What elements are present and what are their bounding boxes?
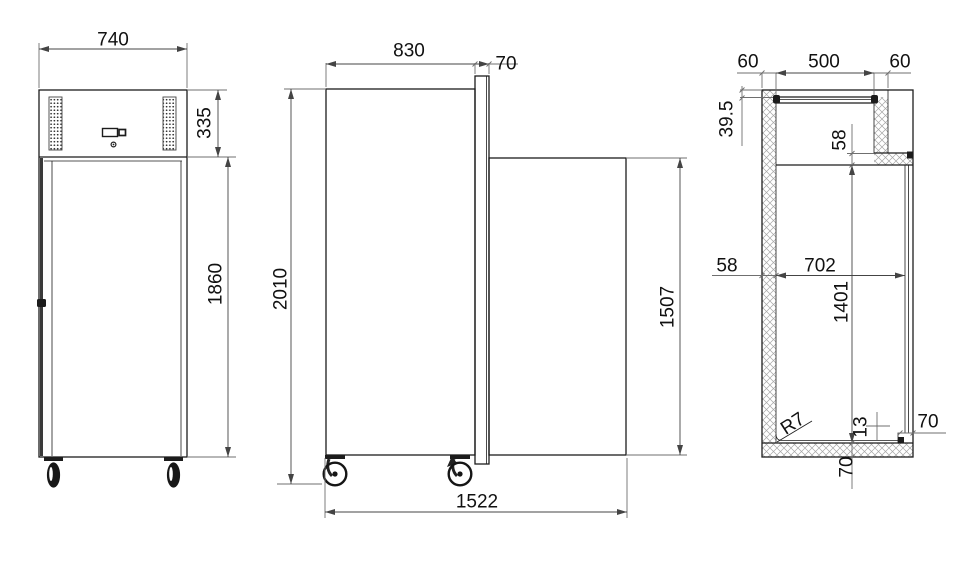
dim-top-duct-height: 58 (830, 129, 851, 150)
front-caster-left (44, 457, 63, 488)
dim-top-panel-inset: 39.5 (717, 101, 738, 138)
top-panel-end-cap-right (871, 95, 878, 104)
dim-left-wall-thickness: 60 (737, 52, 758, 73)
door-hinge (37, 299, 46, 307)
section-right-upper-wall (874, 97, 888, 153)
top-panel-end-cap-left (773, 95, 780, 104)
dim-front-overall-width: 740 (97, 30, 129, 51)
display-window (103, 129, 118, 137)
open-door-panel (489, 158, 626, 455)
side-cabinet-outline (326, 89, 475, 455)
dim-floor-panel-thickness: 13 (851, 416, 872, 437)
dim-rear-wall-thickness: 58 (716, 256, 737, 277)
technical-drawing-page: 740 335 1860 (0, 0, 962, 581)
side-caster-rear (447, 455, 471, 485)
dim-overall-height: 2010 (271, 268, 292, 310)
dim-inner-corner-radius: R7 (777, 409, 809, 440)
dim-bottom-insulation-thickness: 70 (837, 456, 858, 477)
control-panel (103, 129, 126, 147)
refrigerator-dimension-drawing: 740 335 1860 (0, 0, 962, 581)
side-view: 830 70 2010 1507 1522 (271, 41, 688, 519)
section-bottom-insulation (762, 443, 913, 457)
duct-front-seal (907, 152, 913, 159)
top-panel-bar (773, 95, 878, 104)
section-left-wall-insulation (762, 90, 776, 443)
dim-machine-compartment-height: 335 (195, 107, 216, 139)
vent-grille-right (163, 97, 176, 150)
front-caster-right (164, 457, 183, 488)
dim-interior-height: 1401 (832, 281, 853, 323)
dim-door-height: 1507 (658, 286, 679, 328)
door-sill-seal (898, 437, 904, 443)
dim-top-opening-width: 500 (808, 52, 840, 73)
cross-section-view: 60 500 60 39.5 58 58 702 1401 R7 13 70 7… (712, 52, 946, 490)
dim-overall-depth: 830 (393, 41, 425, 62)
dim-depth-door-open: 1522 (456, 492, 498, 513)
front-view: 740 335 1860 (37, 30, 236, 488)
front-dimension-lines (39, 43, 236, 457)
dim-interior-depth: 702 (804, 256, 836, 277)
dim-body-height: 1860 (206, 263, 227, 305)
dim-door-thickness: 70 (495, 54, 516, 75)
lock-pin (113, 144, 115, 146)
vent-grille-left (49, 97, 62, 150)
control-button (119, 130, 126, 136)
dim-right-wall-thickness: 60 (889, 52, 910, 73)
dim-front-wall-thickness: 70 (917, 412, 938, 433)
side-caster-front (324, 455, 347, 485)
